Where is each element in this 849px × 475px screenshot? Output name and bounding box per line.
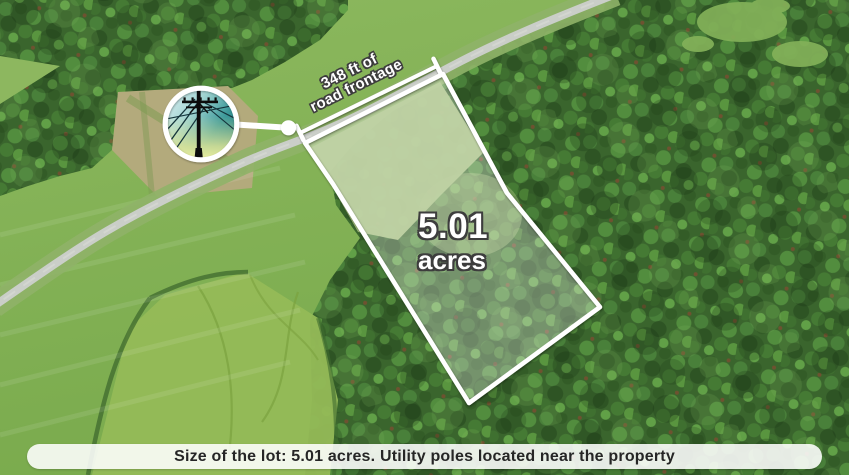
aerial-property-map: 348 ft of road frontage 5.01 acres Size … [0, 0, 849, 475]
utility-pole-inset [165, 88, 237, 160]
lot-acreage-label: 5.01 acres [418, 209, 488, 273]
caption-text: Size of the lot: 5.01 acres. Utility pol… [174, 448, 675, 466]
caption-bar: Size of the lot: 5.01 acres. Utility pol… [27, 444, 822, 469]
acreage-value: 5.01 [418, 209, 488, 244]
acreage-unit: acres [418, 247, 488, 273]
